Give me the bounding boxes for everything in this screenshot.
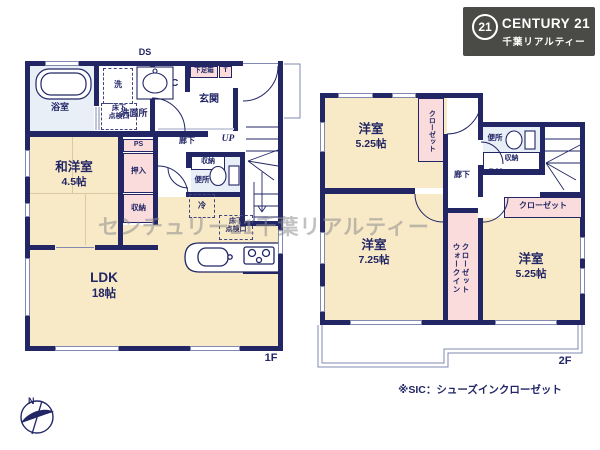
wall (320, 188, 415, 194)
window (338, 93, 373, 98)
toilet1-door-arc (168, 168, 188, 188)
front-door-arc (243, 66, 278, 101)
bedroom1-size-label: 5.25帖 (325, 138, 417, 151)
stairs-1f (246, 127, 278, 221)
storage-upper-label: 収納 (123, 203, 154, 212)
bedroom2-size-label: 7.25帖 (328, 254, 420, 267)
wall (278, 61, 283, 351)
oshiire-label: 押入 (123, 166, 154, 175)
window (350, 320, 422, 325)
room-label-bath: 浴室 (34, 102, 86, 113)
compass-north-label: N (28, 396, 35, 406)
wall (95, 245, 158, 250)
stairs-2f (545, 139, 580, 190)
wic-label: ウォークイン クローゼット (452, 220, 470, 316)
washitsu-size-label: 4.5帖 (32, 176, 116, 189)
floor1-label: 1F (256, 352, 286, 365)
brand-logo: 21 CENTURY 21 千葉リアルティー (463, 7, 595, 56)
ldk-size-label: 18帖 (58, 288, 150, 302)
room-label-hallway1: 廊下 (174, 136, 200, 146)
wall (448, 208, 478, 213)
window (25, 150, 30, 177)
balcony-outline (318, 325, 582, 367)
floor2-label: 2F (550, 355, 580, 368)
room-label-hallway2: 廊下 (448, 170, 476, 180)
room-label-toilet1: 便所 (189, 175, 215, 184)
window (495, 320, 557, 325)
room-label-washitsu: 和洋室 (32, 160, 116, 175)
room-label-bedroom1: 洋室 (325, 122, 417, 137)
wall (30, 245, 55, 250)
up-label: UP (214, 134, 242, 145)
closet1-label: クローゼット (427, 103, 435, 159)
closet2-label: クローゼット (504, 201, 582, 211)
ds-label: DS (134, 47, 156, 58)
floorplan-canvas: DS 浴室 洗 床下 点検口 洗面所 SIC 下足箱 T 玄関 廊下 UP PS… (0, 0, 600, 450)
compass-icon: N (21, 396, 54, 434)
tatami-line (30, 193, 118, 194)
window (580, 268, 585, 294)
ldk-door-arc (158, 166, 188, 196)
underfloor-hatch2-label: 床下 点検口 (219, 218, 253, 235)
bedroom3-size-label: 5.25帖 (484, 268, 578, 281)
wall (540, 127, 545, 175)
fridge-label: 冷 (189, 201, 215, 211)
wall (150, 66, 155, 131)
room-label-entrance: 玄関 (188, 94, 230, 106)
wall (478, 218, 483, 320)
window (25, 203, 30, 217)
room-label-bedroom3: 洋室 (484, 252, 578, 267)
room-label-washroom: 洗面所 (104, 108, 164, 119)
t-box-label: T (219, 67, 232, 75)
window (580, 237, 585, 259)
brand-company: 千葉リアルティー (497, 34, 591, 48)
window (320, 232, 325, 264)
porch-outline (284, 64, 300, 118)
room-label-toilet2: 便所 (482, 133, 508, 142)
wall (233, 88, 238, 131)
window (320, 286, 325, 312)
century21-seal-icon: 21 (472, 14, 498, 40)
window (190, 346, 240, 351)
brand-name: CENTURY 21 (501, 16, 591, 31)
bath-floor (30, 66, 94, 131)
room-label-bedroom2: 洋室 (328, 238, 420, 253)
washer-label: 洗 (103, 80, 133, 90)
dn-label: DN (482, 168, 508, 179)
sic-note: ※SIC：シューズインクローゼット (360, 384, 600, 397)
shoe-box-label: 下足箱 (190, 67, 218, 75)
wall (580, 122, 585, 325)
ps-label: PS (123, 141, 154, 149)
window (55, 346, 119, 351)
window (45, 61, 79, 66)
wall (243, 267, 283, 274)
wall (478, 122, 585, 127)
window (278, 230, 283, 254)
bedroom1-door-arc (447, 100, 481, 134)
room-label-ldk: LDK (58, 270, 150, 286)
storage2-label: 収納 (483, 155, 540, 163)
room-label-sic: SIC (150, 78, 190, 90)
wall (94, 66, 99, 106)
storage-hall-label: 収納 (192, 158, 224, 166)
window (25, 258, 30, 316)
window (392, 93, 416, 98)
entrance-step-line (158, 128, 234, 130)
tatami-line (85, 193, 86, 245)
